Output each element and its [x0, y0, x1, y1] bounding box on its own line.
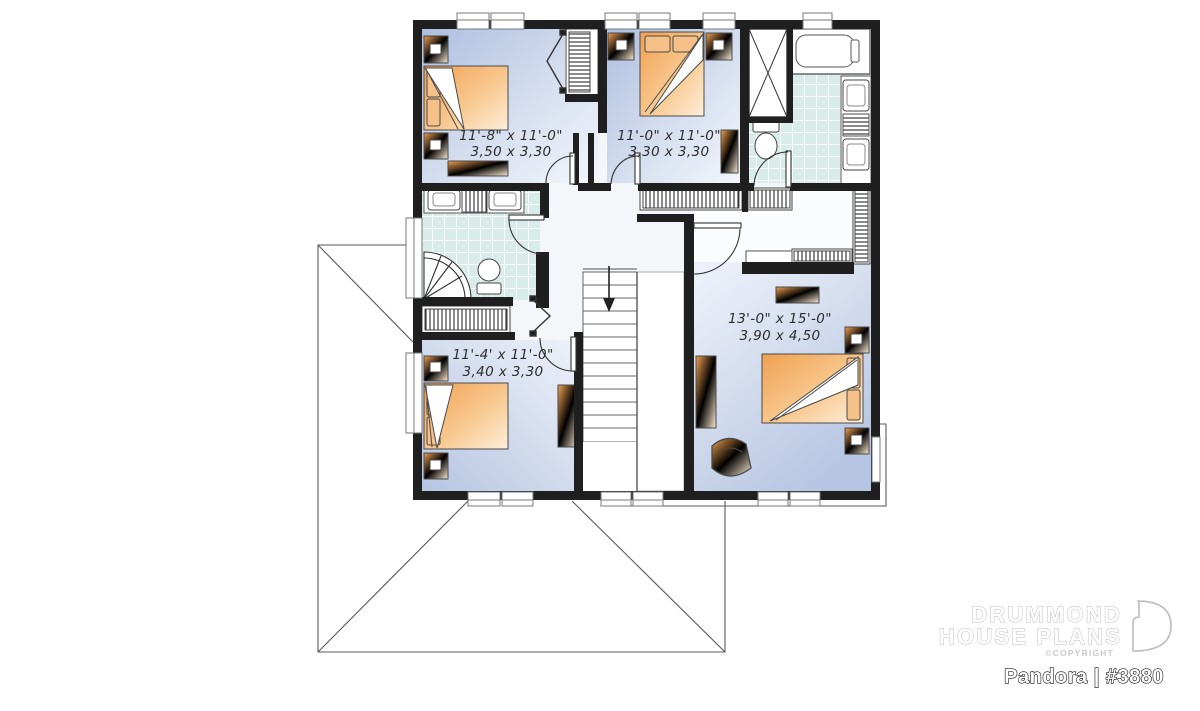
plan-title: Pandora | #3880 — [1004, 666, 1164, 688]
drummond-logo-icon — [1133, 601, 1171, 651]
bed-bottom-left — [424, 383, 508, 449]
floor-plan-canvas: 11'-8" x 11'-0" 3,50 x 3,30 11'-0" x 11'… — [0, 0, 1200, 711]
bedroom-top-center-metric: 3,30 x 3,30 — [628, 144, 709, 160]
armchair — [712, 438, 751, 476]
bed-master — [762, 354, 863, 423]
bedroom-bottom-left-imperial: 11'-4' x 11'-0" — [452, 347, 553, 363]
bedroom-top-left-imperial: 11'-8" x 11'-0" — [459, 128, 563, 144]
linen-closet-shelves — [749, 29, 787, 117]
toilet-mid-bath — [477, 259, 501, 294]
bathtub — [790, 29, 870, 74]
bedroom-top-left-metric: 3,50 x 3,30 — [470, 144, 551, 160]
floor-plan-page: 11'-8" x 11'-0" 3,50 x 3,30 11'-0" x 11'… — [0, 0, 1200, 711]
bedroom-bottom-left-metric: 3,40 x 3,30 — [462, 364, 543, 380]
bed-top-left — [424, 66, 508, 130]
master-bedroom-metric: 3,90 x 4,50 — [739, 328, 820, 344]
toilet-top-bath — [753, 121, 779, 159]
vanity-top-bath — [841, 76, 871, 184]
bed-top-center — [640, 32, 704, 116]
brand-block: DRUMMOND HOUSE PLANS ©COPYRIGHT Pandora … — [939, 601, 1171, 688]
copyright-label: ©COPYRIGHT — [1045, 648, 1114, 658]
brand-line2: HOUSE PLANS — [939, 624, 1122, 649]
staircase — [583, 266, 684, 491]
bedroom-top-center-imperial: 11'-0" x 11'-0" — [617, 128, 721, 144]
master-bedroom-imperial: 13'-0" x 15'-0" — [728, 311, 832, 327]
